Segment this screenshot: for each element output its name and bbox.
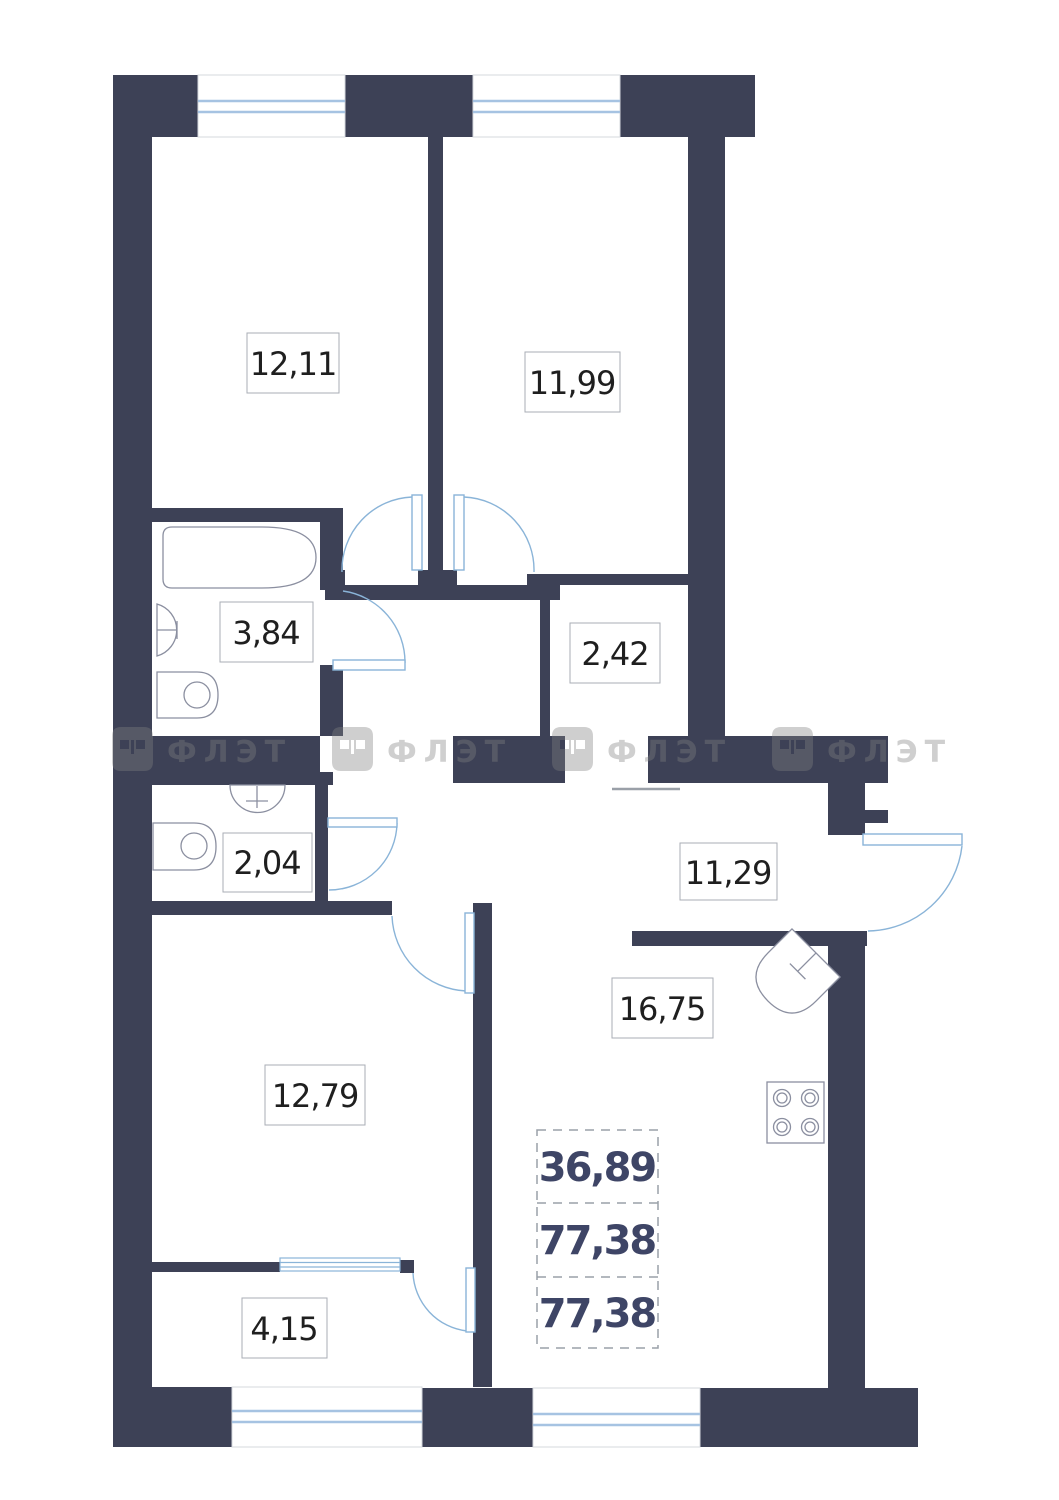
door-arc-room-1 <box>342 497 412 572</box>
watermark-logo-icon <box>332 727 373 771</box>
watermark-text: ФЛЭТ <box>607 735 732 770</box>
room-label-room-3: 12,79 <box>265 1065 365 1125</box>
wall-niche-top <box>527 574 688 585</box>
wc-toilet <box>153 823 216 870</box>
area-summary-box: 36,89 77,38 77,38 <box>537 1130 658 1348</box>
wall-entrance-side <box>828 783 865 835</box>
room-area-value: 12,79 <box>272 1077 359 1115</box>
room-area-value: 3,84 <box>232 614 299 652</box>
watermark-logo-icon <box>552 727 593 771</box>
wall-room3-kitchen <box>473 903 492 1387</box>
door-arc-room-3 <box>392 916 466 991</box>
room-area-value: 11,29 <box>685 854 772 892</box>
wall-wardrobe-jamb <box>400 1260 414 1273</box>
wall-hall-top-band <box>325 585 560 600</box>
door-leaf-room-2 <box>454 495 464 570</box>
room-label-kitchen-living: 16,75 <box>612 978 713 1038</box>
door-leaf-wc <box>328 818 397 827</box>
wall-wardrobe-top <box>152 1262 280 1272</box>
room-area-value: 12,11 <box>250 345 337 383</box>
wall-niche-left <box>540 584 550 736</box>
door-arc-entrance <box>868 846 962 931</box>
watermark: ФЛЭТ <box>772 727 952 771</box>
wall-wc-top <box>152 772 333 785</box>
watermark-text: ФЛЭТ <box>167 735 292 770</box>
door-leaf-bathroom <box>333 660 405 670</box>
stove <box>767 1082 824 1143</box>
door-leaf-wardrobe <box>466 1268 475 1332</box>
window-bottom-2 <box>533 1388 700 1447</box>
bathroom-toilet <box>157 672 218 718</box>
bathroom-sink <box>157 604 177 656</box>
wall-left-outer <box>113 137 152 1447</box>
room-label-wardrobe: 4,15 <box>242 1298 327 1358</box>
wall-wc-right <box>315 785 328 901</box>
room-label-niche: 2,42 <box>570 623 660 683</box>
room-area-value: 16,75 <box>619 990 706 1028</box>
room-label-hallway: 11,29 <box>680 843 777 900</box>
room-area-value: 4,15 <box>250 1310 317 1348</box>
wall-room3-top <box>152 901 392 915</box>
wall-bottom-left-corner <box>113 1387 232 1447</box>
wall-top-right-block <box>620 75 755 137</box>
wall-kitchen-right <box>828 931 865 1388</box>
door-arc-wc <box>329 823 397 890</box>
floor-plan: ФЛЭТ ФЛЭТ ФЛЭТ ФЛЭТ 12,11 11,99 3,84 <box>0 0 1059 1500</box>
window-bottom-1 <box>232 1387 422 1447</box>
door-leaf-entrance <box>863 834 962 845</box>
room-label-bathroom: 3,84 <box>220 602 313 662</box>
window-top-1 <box>198 75 345 137</box>
reduced-total-area-value: 77,38 <box>539 1291 656 1337</box>
wall-right-upper <box>688 137 725 736</box>
wall-bathroom-top <box>152 508 333 522</box>
door-arc-bathroom <box>343 591 405 663</box>
door-arc-wardrobe <box>413 1273 467 1331</box>
window-top-2 <box>473 75 620 137</box>
bathtub <box>163 527 316 588</box>
watermark: ФЛЭТ <box>332 727 512 771</box>
wall-jamb-left <box>330 570 345 585</box>
total-area-value: 77,38 <box>539 1218 656 1264</box>
door-leaf-room-3 <box>465 913 474 993</box>
living-area-value: 36,89 <box>539 1145 656 1191</box>
room-label-wc: 2,04 <box>223 833 312 892</box>
floor-plan-drawing: ФЛЭТ ФЛЭТ ФЛЭТ ФЛЭТ 12,11 11,99 3,84 <box>0 0 1059 1500</box>
room-area-value: 11,99 <box>529 364 616 402</box>
wall-partition-foot <box>418 570 457 585</box>
room-area-value: 2,04 <box>233 844 300 882</box>
door-leaf-room-1 <box>412 495 422 570</box>
glazed-partition-wardrobe <box>280 1258 400 1271</box>
room-label-room-1: 12,11 <box>247 333 339 393</box>
wall-entrance-notch <box>865 810 888 823</box>
wc-sink <box>230 785 285 813</box>
wall-bottom-pier <box>422 1388 533 1447</box>
door-arc-room-2 <box>464 497 534 572</box>
wall-partition-bedrooms <box>428 137 443 570</box>
wall-bathroom-right-lower <box>320 665 343 736</box>
room-area-value: 2,42 <box>581 635 648 673</box>
watermark: ФЛЭТ <box>112 727 292 771</box>
wall-bottom-right-block <box>700 1388 918 1447</box>
watermark-text: ФЛЭТ <box>827 735 952 770</box>
wall-top-left-corner <box>113 75 198 137</box>
wall-top-pier <box>345 75 473 137</box>
watermark-text: ФЛЭТ <box>387 735 512 770</box>
room-label-room-2: 11,99 <box>525 352 620 412</box>
